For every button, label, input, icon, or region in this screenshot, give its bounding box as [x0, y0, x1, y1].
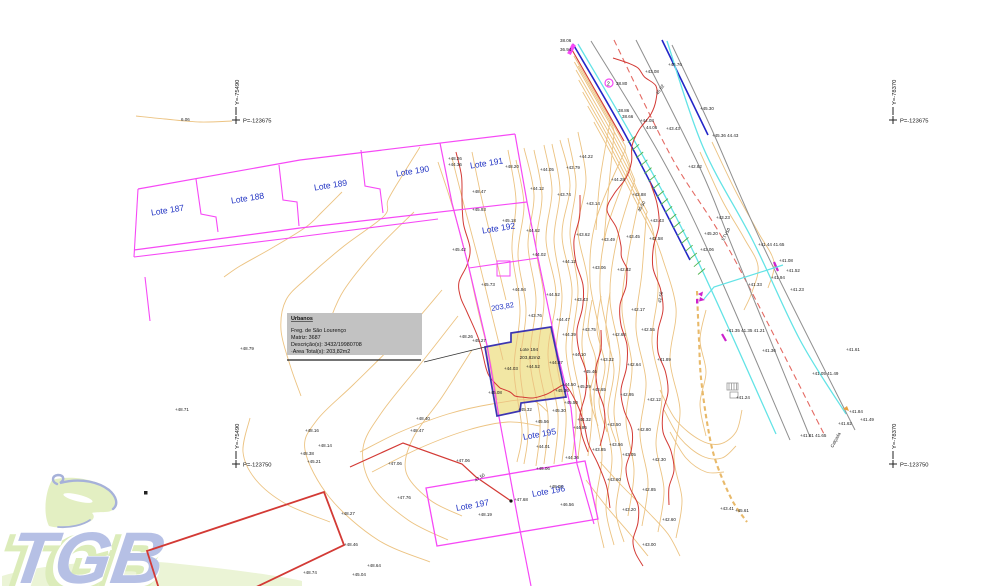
svg-text:+48.79: +48.79 [240, 346, 254, 351]
svg-text:+41.81 41.65: +41.81 41.65 [800, 433, 827, 438]
svg-text:Lote 189: Lote 189 [313, 177, 348, 192]
svg-text:+43.79: +43.79 [566, 165, 580, 170]
svg-text:+41.05 41.49: +41.05 41.49 [812, 371, 839, 376]
svg-text:+41.08: +41.08 [779, 258, 793, 263]
svg-text:+44.28: +44.28 [611, 177, 625, 182]
svg-text:+44.22: +44.22 [579, 154, 593, 159]
svg-text:+48.64: +48.64 [367, 563, 381, 568]
svg-text:38.80: 38.80 [616, 81, 628, 86]
svg-text:Calçada: Calçada [829, 431, 841, 448]
svg-text:+43.74: +43.74 [557, 192, 571, 197]
svg-text:+45.50: +45.50 [564, 400, 578, 405]
svg-text:+43.85: +43.85 [592, 447, 606, 452]
svg-text:+43.06: +43.06 [592, 265, 606, 270]
svg-text:+41.61: +41.61 [846, 347, 860, 352]
svg-text:+44.50: +44.50 [562, 382, 576, 387]
svg-text:+42.95: +42.95 [620, 392, 634, 397]
svg-text:+43.43: +43.43 [650, 218, 664, 223]
svg-text:+44.52: +44.52 [526, 364, 540, 369]
svg-text:+44.39: +44.39 [562, 332, 576, 337]
svg-text:+45.73: +45.73 [481, 282, 495, 287]
svg-text:+43.50: +43.50 [607, 422, 621, 427]
svg-text:+44.08: +44.08 [640, 118, 654, 123]
svg-text:+45.06: +45.06 [536, 466, 550, 471]
svg-text:+42.30: +42.30 [652, 457, 666, 462]
svg-text:+41.84: +41.84 [849, 409, 863, 414]
svg-text:+43.32: +43.32 [600, 357, 614, 362]
svg-text:Y=-78370: Y=-78370 [892, 80, 898, 105]
svg-text:Lote 190: Lote 190 [395, 163, 430, 178]
svg-text:Y=-75490: Y=-75490 [235, 424, 241, 449]
svg-text:+48.14: +48.14 [318, 443, 332, 448]
svg-text:38.86: 38.86 [618, 108, 630, 113]
svg-text:+48.26: +48.26 [448, 156, 462, 161]
svg-text:P=-123675: P=-123675 [243, 118, 272, 124]
svg-text:+41.35 41.35 41.21: +41.35 41.35 41.21 [726, 328, 765, 333]
svg-text:Lote 187: Lote 187 [150, 202, 185, 217]
svg-text:+43.41: +43.41 [720, 506, 734, 511]
svg-text:+43.00: +43.00 [642, 542, 656, 547]
svg-text:+41.44 41.65: +41.44 41.65 [758, 242, 785, 247]
svg-text:+43.05: +43.05 [622, 452, 636, 457]
svg-text:+45.93: +45.93 [472, 207, 486, 212]
svg-text:+45.42: +45.42 [452, 247, 466, 252]
svg-text:+43.14: +43.14 [586, 201, 600, 206]
svg-text:+44.12: +44.12 [562, 259, 576, 264]
svg-text:+41.23: +41.23 [790, 287, 804, 292]
svg-text:+45.18: +45.18 [502, 218, 516, 223]
svg-text:+48.40: +48.40 [416, 416, 430, 421]
svg-text:+45.46: +45.46 [583, 369, 597, 374]
svg-text:·Area Total(s): 203,82m2: ·Area Total(s): 203,82m2 [291, 349, 350, 355]
svg-text:+45.08: +45.08 [488, 390, 502, 395]
svg-text:+41.36: +41.36 [762, 348, 776, 353]
svg-text:+41.49: +41.49 [860, 417, 874, 422]
svg-text:+43.06: +43.06 [700, 247, 714, 252]
svg-text:P=-123750: P=-123750 [243, 462, 272, 468]
svg-text:+44.03: +44.03 [504, 366, 518, 371]
svg-text:38.66: 38.66 [622, 114, 634, 119]
svg-text:+45.20: +45.20 [704, 231, 718, 236]
svg-text:+42.17: +42.17 [631, 307, 645, 312]
svg-text:P=-123675: P=-123675 [900, 118, 929, 124]
svg-text:+44.01: +44.01 [536, 444, 550, 449]
svg-text:+45.29: +45.29 [577, 384, 591, 389]
svg-text:Urbanos: Urbanos [291, 316, 313, 322]
svg-text:+47.76: +47.76 [397, 495, 411, 500]
svg-text:+42.85: +42.85 [642, 487, 656, 492]
svg-text:+44.52: +44.52 [546, 292, 560, 297]
svg-text:Lote 197: Lote 197 [455, 497, 490, 513]
svg-text:Descrição(s): 3432/19980708: Descrição(s): 3432/19980708 [291, 342, 362, 348]
svg-text:TGB: TGB [5, 517, 171, 586]
svg-text:+41.89: +41.89 [657, 357, 671, 362]
svg-text:+47.06: +47.06 [388, 461, 402, 466]
svg-text:+42.58: +42.58 [649, 236, 663, 241]
svg-text:+44.87: +44.87 [549, 360, 563, 365]
svg-text:+48.46: +48.46 [344, 542, 358, 547]
svg-text:+43.08: +43.08 [645, 69, 659, 74]
svg-text:P=-123750: P=-123750 [900, 462, 929, 468]
svg-text:Lote 188: Lote 188 [230, 190, 265, 205]
svg-text:+45.30: +45.30 [700, 106, 714, 111]
svg-text:+48.74: +48.74 [303, 570, 317, 575]
svg-text:+43.62: +43.62 [576, 232, 590, 237]
svg-text:+47.06: +47.06 [456, 458, 470, 463]
svg-text:45.02: 45.02 [655, 83, 666, 95]
svg-text:38.06: 38.06 [560, 38, 572, 43]
svg-text:36.94: 36.94 [560, 47, 572, 52]
svg-text:203,82m2: 203,82m2 [520, 355, 541, 360]
svg-text:+48.47: +48.47 [410, 428, 424, 433]
svg-text:+43.20: +43.20 [622, 507, 636, 512]
svg-text:+44.36: +44.36 [565, 455, 579, 460]
svg-text:+42.60: +42.60 [662, 517, 676, 522]
svg-text:+44.10: +44.10 [572, 352, 586, 357]
svg-text:+43.43: +43.43 [666, 126, 680, 131]
svg-text:+43.23: +43.23 [716, 215, 730, 220]
svg-text:+48.20: +48.20 [505, 164, 519, 169]
svg-text:+45.30: +45.30 [552, 408, 566, 413]
svg-text:+44.02: +44.02 [532, 252, 546, 257]
svg-text:+45.36: +45.36 [555, 388, 569, 393]
svg-text:+42.64: +42.64 [627, 362, 641, 367]
svg-text:Y=-75490: Y=-75490 [235, 80, 241, 105]
svg-text:+45.76: +45.76 [668, 62, 682, 67]
svg-text:40.50: 40.50 [637, 200, 647, 213]
svg-text:+47.68: +47.68 [514, 497, 528, 502]
svg-text:+44.05: +44.05 [540, 167, 554, 172]
svg-text:Lote 194: Lote 194 [520, 347, 539, 352]
svg-text:+41.94: +41.94 [771, 275, 785, 280]
svg-text:+45.21: +45.21 [307, 459, 321, 464]
svg-text:+42.12: +42.12 [647, 397, 661, 402]
svg-text:+42.82: +42.82 [688, 164, 702, 169]
svg-text:+48.71: +48.71 [175, 407, 189, 412]
svg-text:+42.68: +42.68 [612, 332, 626, 337]
svg-text:+42.88: +42.88 [632, 192, 646, 197]
svg-text:6.06: 6.06 [181, 117, 190, 122]
svg-text:+43.60: +43.60 [607, 477, 621, 482]
svg-text:+43.65: +43.65 [592, 387, 606, 392]
svg-text:+48.38: +48.38 [300, 451, 314, 456]
svg-text:44.06: 44.06 [646, 125, 658, 130]
svg-text:+48.19: +48.19 [478, 512, 492, 517]
svg-text:+45.61: +45.61 [735, 508, 749, 513]
svg-text:+45.32: +45.32 [518, 407, 532, 412]
svg-text:+44.36: +44.36 [448, 162, 462, 167]
svg-text:+44.86: +44.86 [573, 425, 587, 430]
svg-text:+42.80: +42.80 [637, 427, 651, 432]
svg-text:+41.33: +41.33 [748, 282, 762, 287]
svg-text:Freg. de São Lourenço: Freg. de São Lourenço [291, 328, 346, 334]
svg-text:+46.56: +46.56 [560, 502, 574, 507]
svg-text:+45.04: +45.04 [352, 572, 366, 577]
svg-text:ETV10: ETV10 [720, 227, 731, 242]
svg-text:+45.27: +45.27 [472, 338, 486, 343]
svg-text:203,82: 203,82 [490, 300, 514, 313]
svg-text:+41.52: +41.52 [786, 268, 800, 273]
svg-text:+48.16: +48.16 [305, 428, 319, 433]
svg-text:+43.56: +43.56 [609, 442, 623, 447]
svg-text:+48.47: +48.47 [472, 189, 486, 194]
svg-text:+43.76: +43.76 [528, 313, 542, 318]
svg-text:Y=-78370: Y=-78370 [892, 424, 898, 449]
svg-text:+42.82: +42.82 [617, 267, 631, 272]
svg-text:Lote 191: Lote 191 [469, 155, 504, 170]
svg-text:+41.24: +41.24 [736, 395, 750, 400]
svg-text:+43.49: +43.49 [601, 237, 615, 242]
svg-text:+43.43: +43.43 [574, 297, 588, 302]
svg-text:+43.45: +43.45 [626, 234, 640, 239]
svg-text:47.50: 47.50 [474, 472, 486, 483]
svg-text:+44.94: +44.94 [512, 287, 526, 292]
svg-text:+45.56: +45.56 [535, 419, 549, 424]
svg-text:+44.12: +44.12 [530, 186, 544, 191]
svg-text:+42.55: +42.55 [641, 327, 655, 332]
svg-text:+45.36 44.43: +45.36 44.43 [712, 133, 739, 138]
svg-text:+44.62: +44.62 [526, 228, 540, 233]
svg-text:+44.47: +44.47 [556, 317, 570, 322]
svg-text:+48.27: +48.27 [341, 511, 355, 516]
svg-text:+41.62: +41.62 [838, 421, 852, 426]
svg-text:+44.32: +44.32 [577, 417, 591, 422]
svg-text:+43.75: +43.75 [582, 327, 596, 332]
svg-text:+48.08: +48.08 [549, 484, 563, 489]
svg-text:Matriz: 3687: Matriz: 3687 [291, 335, 321, 341]
svg-text:2: 2 [607, 82, 610, 88]
